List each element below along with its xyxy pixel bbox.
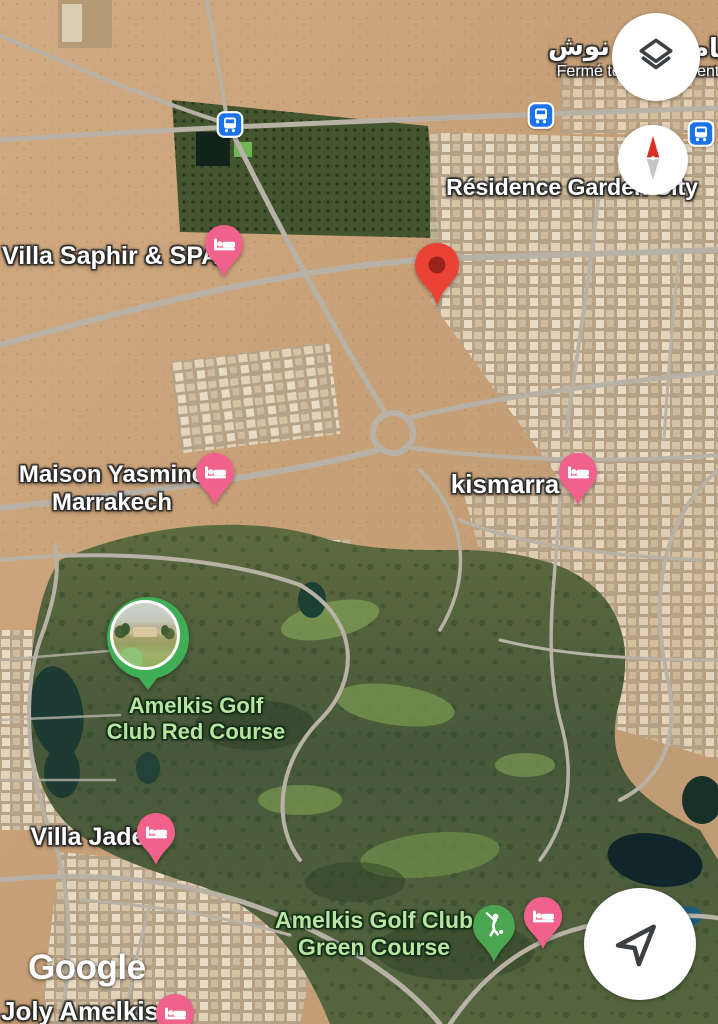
label-kismarra[interactable]: kismarra — [451, 469, 559, 500]
label-maison-yasmine[interactable]: Maison Yasmine Marrakech — [19, 461, 205, 518]
poi-label-arabic-end[interactable]: نوش — [548, 32, 610, 63]
bus-stop-icon[interactable] — [528, 102, 555, 134]
photo-pin-ring — [107, 597, 189, 679]
label-joly-amelkis[interactable]: Joly Amelkis — [1, 996, 159, 1024]
bus-stop-icon[interactable] — [688, 120, 715, 152]
golf-course-pin[interactable] — [472, 905, 516, 962]
label-amelkis-red-line1: Amelkis Golf — [107, 693, 285, 719]
my-location-button[interactable] — [584, 888, 696, 1000]
map-layers-button[interactable] — [612, 13, 700, 101]
label-villa-jade[interactable]: Villa Jade — [31, 823, 146, 853]
hotel-pin-villa-jade[interactable] — [136, 813, 176, 865]
compass-button[interactable] — [618, 125, 688, 195]
bus-stop-icon[interactable] — [217, 111, 244, 143]
hotel-pin-maison-yasmine[interactable] — [195, 453, 235, 505]
hotel-pin-green-course[interactable] — [523, 897, 563, 949]
destination-marker[interactable] — [413, 243, 461, 307]
label-amelkis-green-line1: Amelkis Golf Club — [275, 907, 473, 934]
layers-icon — [635, 34, 677, 81]
hotel-pin-kismarra[interactable] — [558, 453, 598, 505]
navigation-arrow-icon — [612, 914, 668, 975]
google-maps-satellite-view[interactable]: نوش تام Fermé temporairement Résidence G… — [0, 0, 718, 1024]
label-amelkis-red-line2: Club Red Course — [107, 719, 285, 745]
golf-course-photo — [113, 603, 177, 667]
label-villa-saphir-spa[interactable]: Villa Saphir & SPA — [2, 242, 219, 272]
hotel-pin-villa-saphir[interactable] — [204, 225, 244, 277]
label-amelkis-green-course[interactable]: Amelkis Golf Club Green Course — [275, 907, 473, 961]
label-maison-yasmine-line2: Marrakech — [19, 489, 205, 517]
photo-pin-pointer — [138, 677, 158, 690]
compass-needle-icon — [634, 133, 672, 188]
hotel-pin-joly-amelkis[interactable] — [155, 994, 195, 1024]
label-amelkis-red-course[interactable]: Amelkis Golf Club Red Course — [107, 693, 285, 745]
label-amelkis-green-line2: Green Course — [275, 934, 473, 961]
golf-club-photo-pin[interactable] — [106, 597, 190, 690]
google-logo: Google — [28, 948, 146, 988]
label-maison-yasmine-line1: Maison Yasmine — [19, 461, 205, 489]
